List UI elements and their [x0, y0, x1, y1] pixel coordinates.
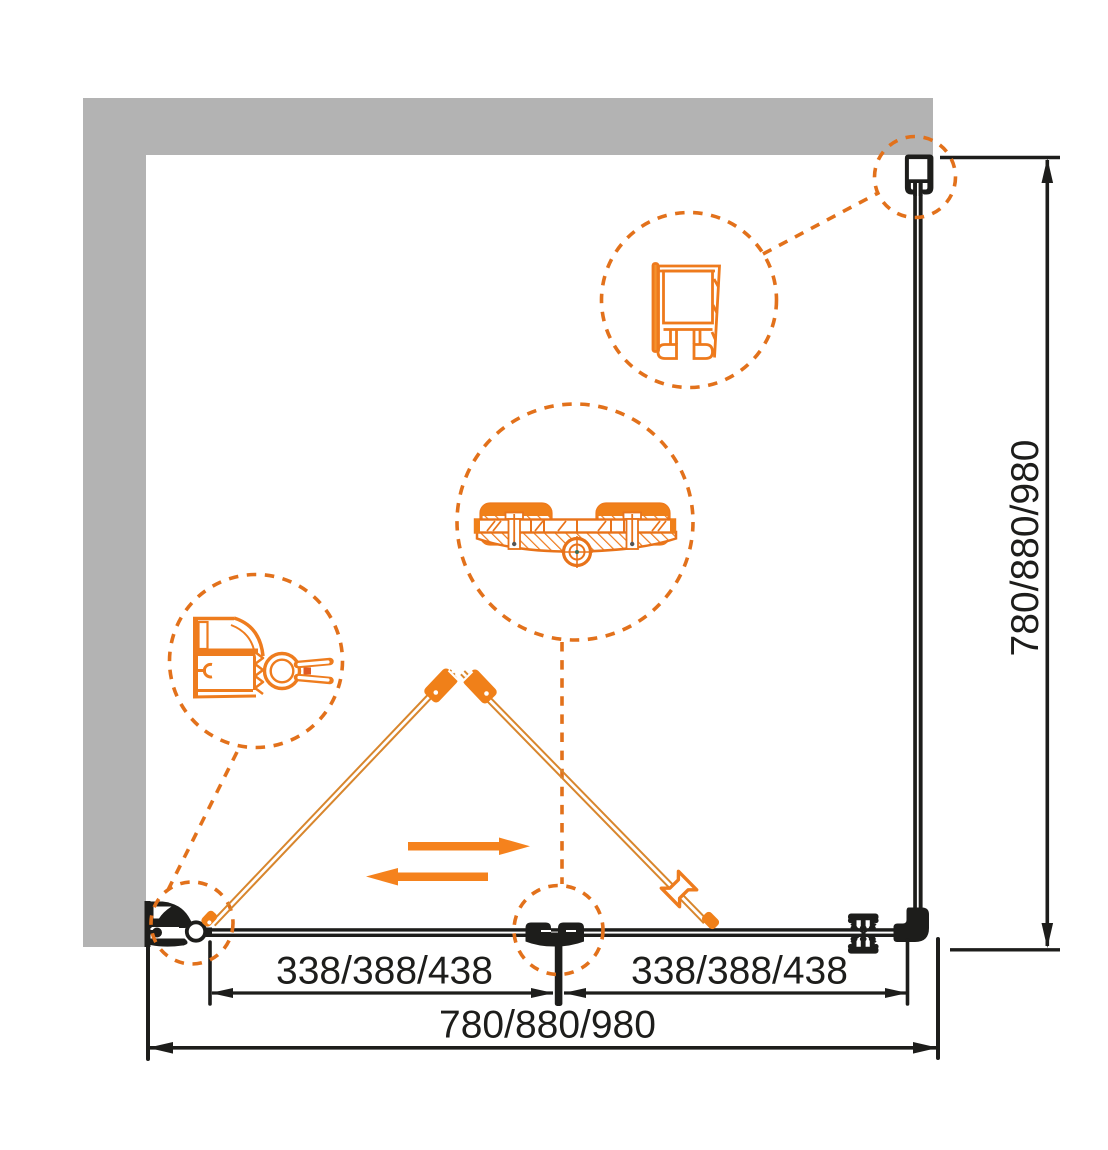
svg-text:338/388/438: 338/388/438 — [276, 950, 493, 993]
svg-text:338/388/438: 338/388/438 — [631, 950, 848, 993]
svg-text:780/880/980: 780/880/980 — [439, 1004, 656, 1047]
svg-text:780/880/980: 780/880/980 — [1004, 440, 1047, 657]
